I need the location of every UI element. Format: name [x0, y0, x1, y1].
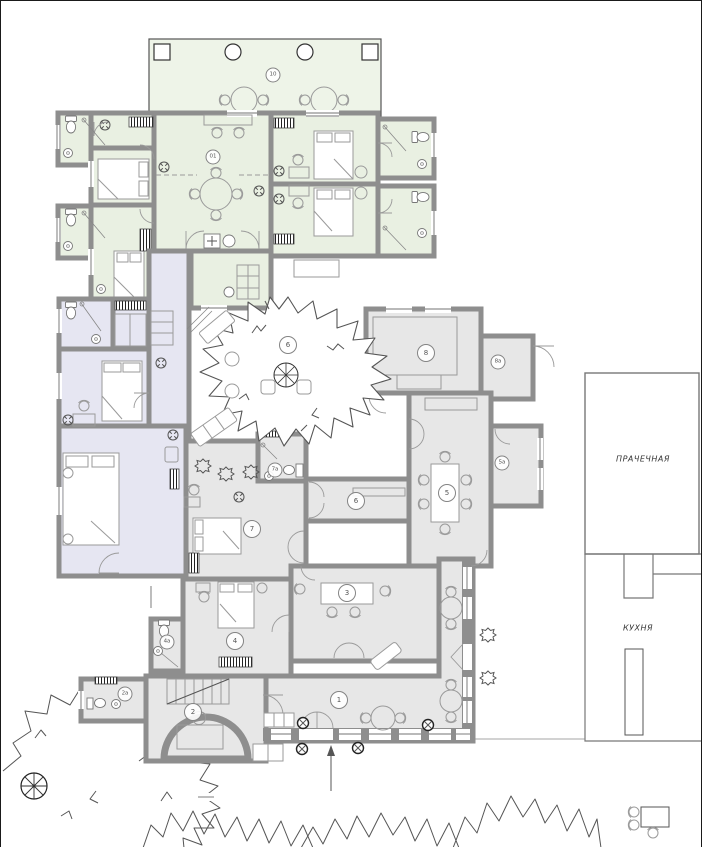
floor-plan: 10 01 6 8 8а 5а 5 6 7а 7 3 4 4а 2а 2 1 П…	[0, 0, 702, 847]
room-label-7a: 7а	[268, 463, 283, 478]
room-label-1: 1	[330, 691, 348, 709]
room-8a	[481, 336, 533, 399]
room-label-8: 8	[417, 344, 435, 362]
kitchen-table	[625, 649, 643, 735]
sofa	[264, 713, 294, 727]
bed-icon	[193, 518, 241, 554]
pouf	[225, 352, 239, 366]
tree-trunk-table	[274, 363, 298, 387]
shrub-row	[143, 811, 313, 847]
bed-icon	[314, 131, 353, 179]
wardrobe-icon	[219, 657, 252, 667]
radiator-icon	[115, 301, 146, 310]
green-building	[55, 39, 437, 311]
bed-icon	[314, 188, 353, 236]
armchair	[297, 380, 311, 394]
radiator-icon	[95, 677, 117, 684]
wardrobe-icon	[140, 229, 151, 251]
room-label-courtyard: 6	[279, 336, 297, 354]
radiator-icon	[274, 234, 294, 244]
outdoor-desk	[628, 807, 669, 839]
laundry-room-label: ПРАЧЕЧНАЯ	[616, 455, 670, 464]
room-label-6-hall: 6	[347, 492, 365, 510]
room-label-3: 3	[338, 584, 356, 602]
wardrobe-icon	[189, 553, 199, 573]
bench	[294, 260, 339, 277]
hall	[149, 251, 189, 441]
door-8a	[533, 346, 554, 367]
room-label-4: 4	[226, 632, 244, 650]
radiator-icon	[170, 469, 179, 489]
column-square	[154, 44, 170, 60]
room-label-lounge: 01	[206, 150, 221, 165]
bed-icon	[114, 251, 144, 297]
room-label-2a: 2а	[118, 687, 133, 702]
tree-trunk-icon	[21, 773, 47, 799]
room-label-4a: 4а	[160, 635, 175, 650]
radiator-icon	[129, 117, 153, 127]
column-square	[362, 44, 378, 60]
bed-icon	[218, 582, 254, 628]
room-label-terrace: 10	[266, 68, 281, 83]
bed-icon	[98, 159, 149, 199]
armchair	[261, 380, 275, 394]
room-label-5: 5	[438, 484, 456, 502]
plan-drawing	[1, 1, 702, 847]
pouf	[225, 384, 239, 398]
room-label-2: 2	[184, 703, 202, 721]
column-round	[225, 44, 241, 60]
room-label-7: 7	[243, 520, 261, 538]
column-round	[297, 44, 313, 60]
radiator-icon	[274, 118, 294, 128]
room-label-5a: 5а	[495, 456, 510, 471]
entry-arrow-icon	[327, 745, 335, 791]
kitchen-room-label: КУХНЯ	[623, 624, 653, 633]
laundry-room	[585, 373, 699, 554]
room-label-8a: 8а	[491, 355, 506, 370]
bed-icon	[102, 361, 142, 421]
